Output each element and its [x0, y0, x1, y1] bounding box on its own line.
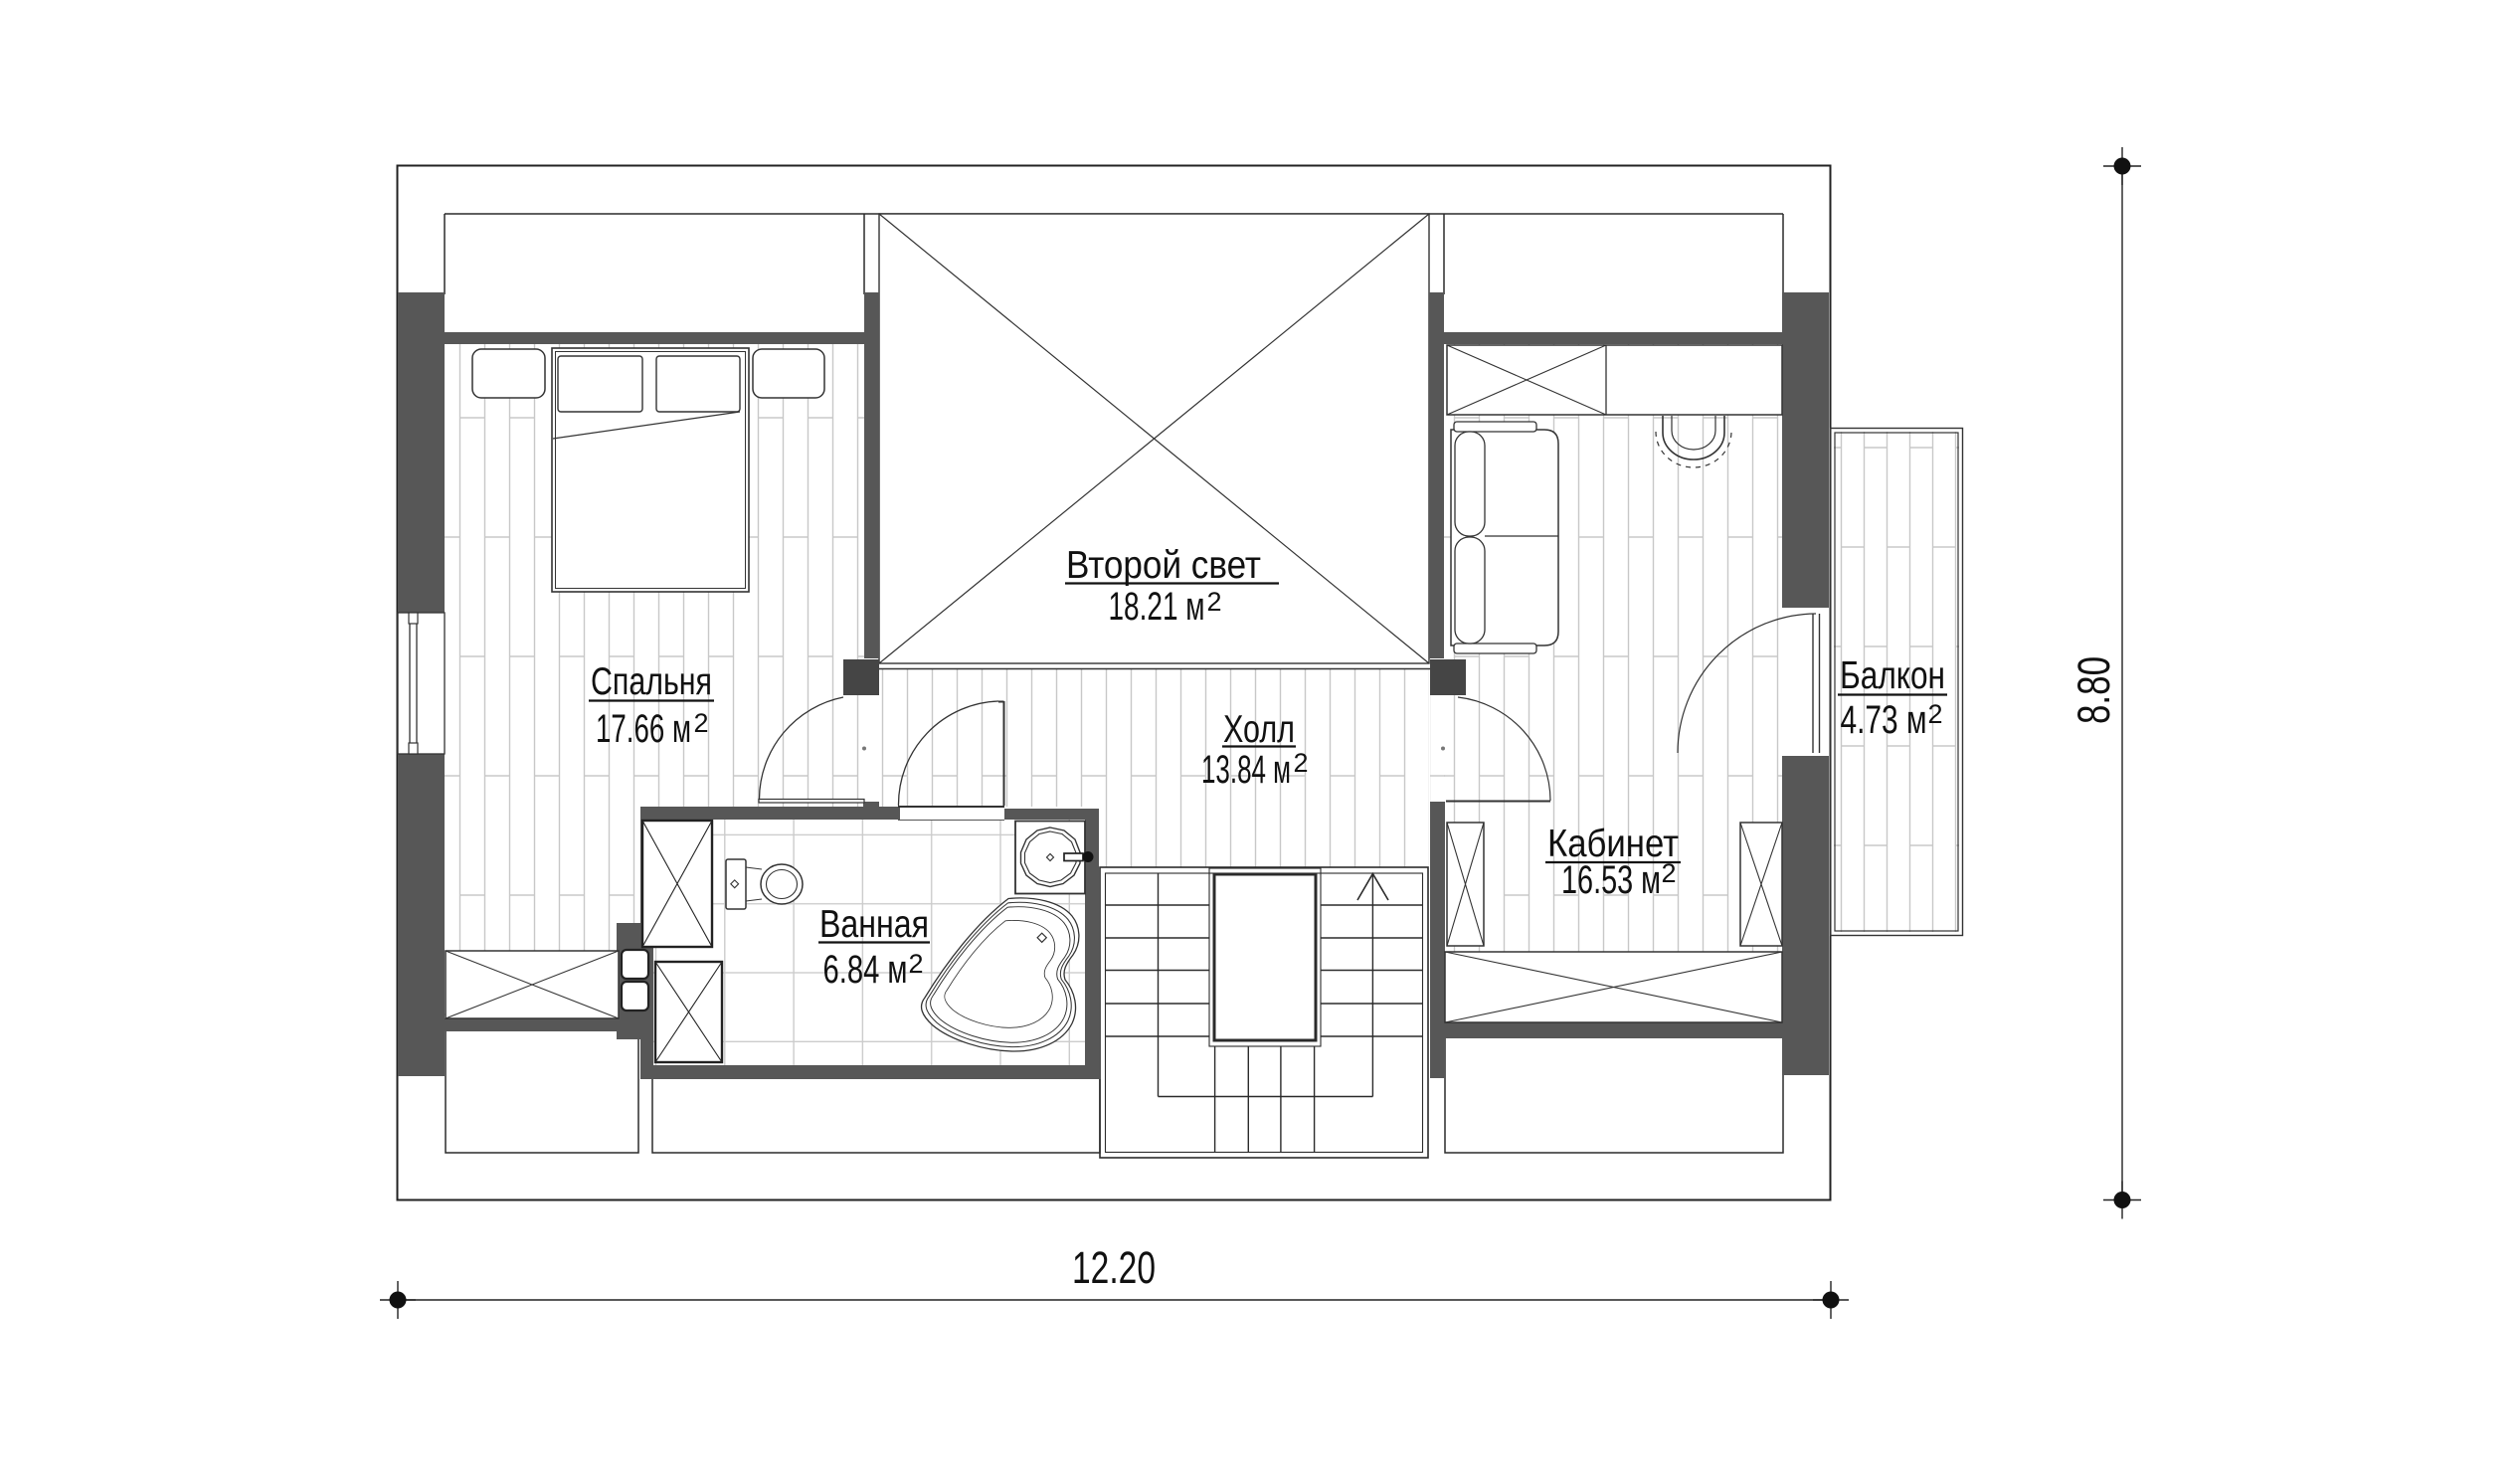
svg-text:12.20: 12.20	[1072, 1242, 1156, 1293]
svg-text:2: 2	[1293, 748, 1308, 778]
svg-text:Балкон: Балкон	[1840, 654, 1945, 697]
svg-text:2: 2	[1927, 699, 1942, 729]
svg-text:2: 2	[1206, 587, 1221, 617]
svg-text:16.53 м: 16.53 м	[1561, 858, 1661, 902]
svg-text:2: 2	[693, 708, 708, 738]
svg-text:Холл: Холл	[1223, 708, 1295, 751]
svg-text:2: 2	[1661, 858, 1676, 888]
svg-text:8.80: 8.80	[2069, 656, 2119, 724]
svg-text:6.84 м: 6.84 м	[823, 948, 908, 992]
svg-text:Второй свет: Второй свет	[1066, 544, 1261, 587]
svg-text:13.84 м: 13.84 м	[1201, 748, 1291, 792]
svg-text:4.73 м: 4.73 м	[1841, 698, 1927, 742]
svg-text:2: 2	[908, 949, 923, 979]
svg-text:Ванная: Ванная	[819, 903, 929, 946]
svg-text:Спальня: Спальня	[591, 660, 712, 703]
svg-text:18.21 м: 18.21 м	[1109, 585, 1205, 629]
svg-text:17.66 м: 17.66 м	[596, 707, 691, 751]
